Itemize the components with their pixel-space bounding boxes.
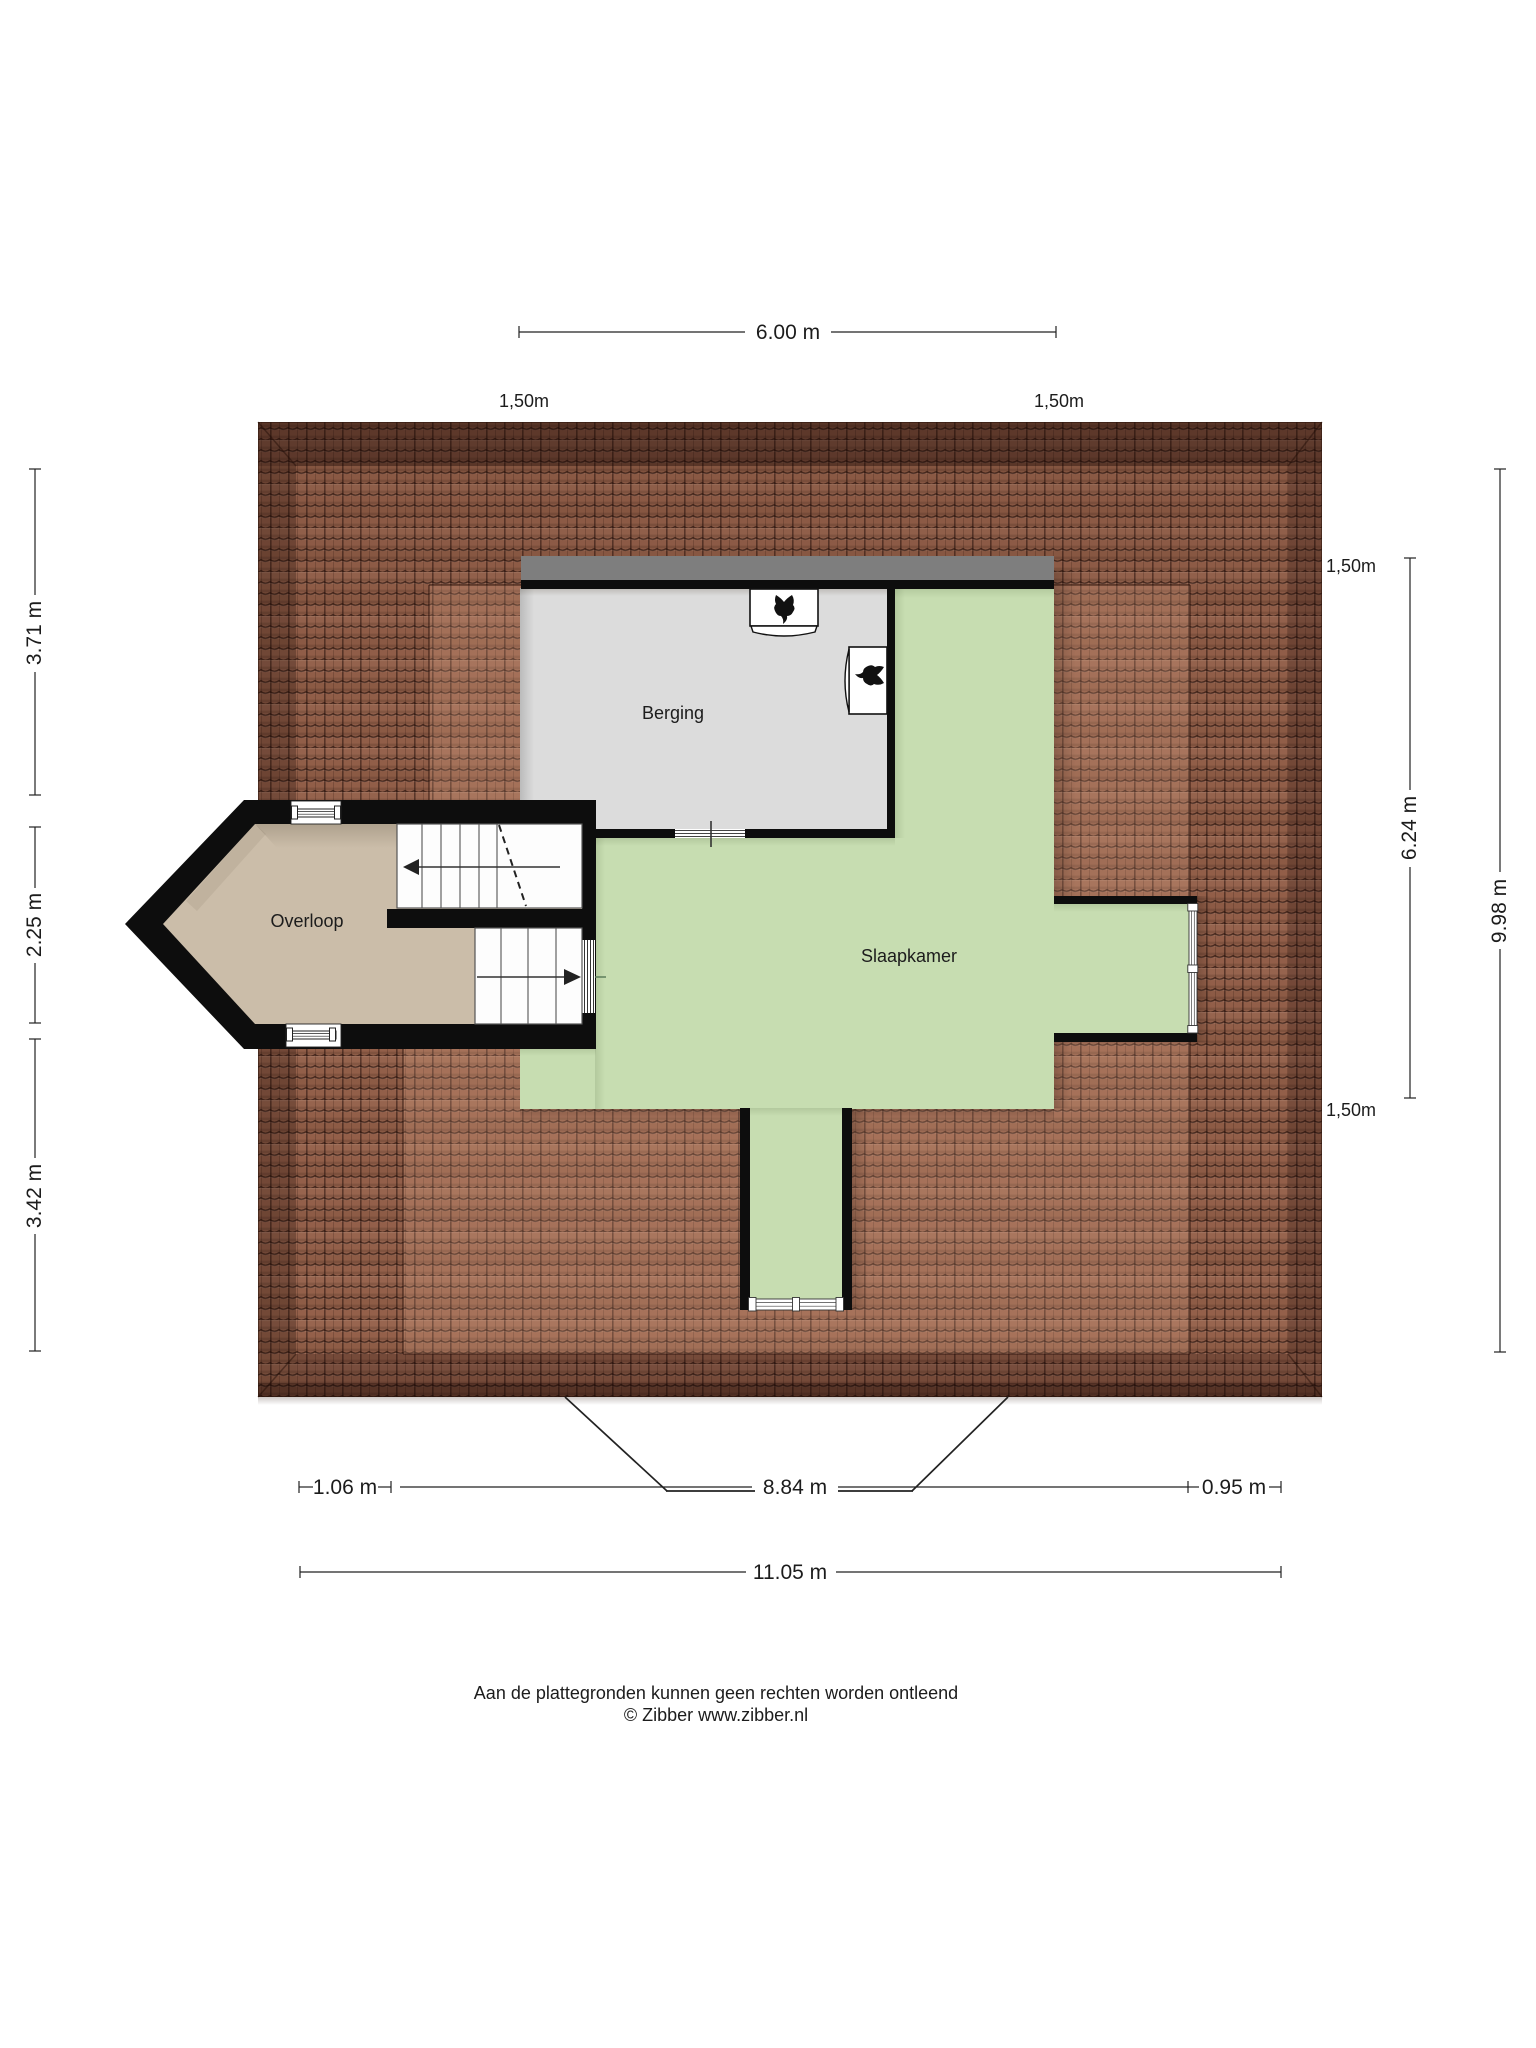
svg-text:0.95 m: 0.95 m <box>1202 1476 1266 1499</box>
svg-text:1,50m: 1,50m <box>1034 391 1084 411</box>
svg-text:Slaapkamer: Slaapkamer <box>861 946 957 966</box>
svg-text:Overloop: Overloop <box>270 911 343 931</box>
svg-text:6.24 m: 6.24 m <box>1398 796 1421 860</box>
svg-text:2.25 m: 2.25 m <box>23 893 46 957</box>
svg-text:11.05 m: 11.05 m <box>753 1561 827 1584</box>
svg-text:8.84 m: 8.84 m <box>763 1476 827 1499</box>
svg-text:Berging: Berging <box>642 703 704 723</box>
svg-text:1,50m: 1,50m <box>499 391 549 411</box>
svg-text:1.06 m: 1.06 m <box>313 1476 377 1499</box>
svg-text:Aan de plattegronden kunnen ge: Aan de plattegronden kunnen geen rechten… <box>474 1683 958 1703</box>
svg-text:9.98 m: 9.98 m <box>1488 879 1511 943</box>
svg-text:3.42 m: 3.42 m <box>23 1164 46 1228</box>
svg-text:1,50m: 1,50m <box>1326 556 1376 576</box>
svg-text:3.71 m: 3.71 m <box>23 601 46 665</box>
svg-text:1,50m: 1,50m <box>1326 1100 1376 1120</box>
svg-text:6.00 m: 6.00 m <box>756 321 820 344</box>
svg-text:© Zibber www.zibber.nl: © Zibber www.zibber.nl <box>624 1705 808 1725</box>
